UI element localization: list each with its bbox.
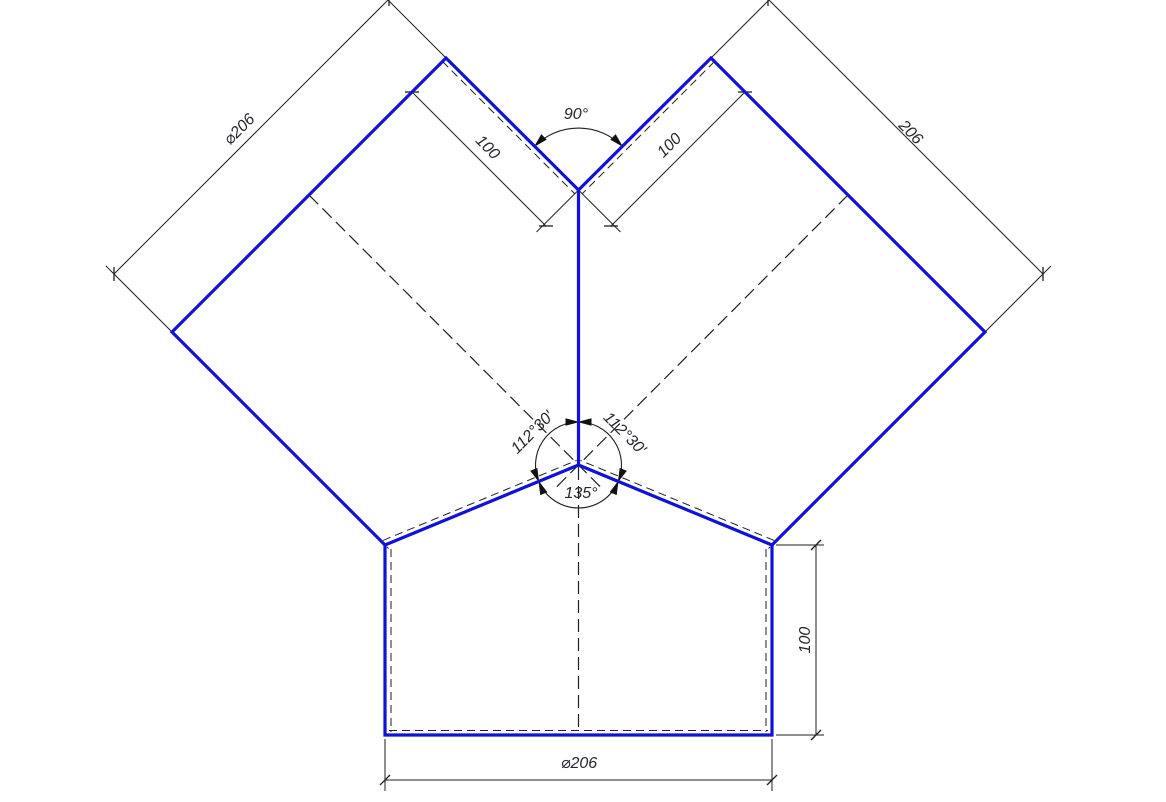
dim-left-cap [106,0,446,332]
label-crotch-angle: 90° [564,106,589,123]
label-bottom-junction-angle: 135° [564,485,598,502]
label-outlet-diameter: ⌀206 [561,755,597,772]
wye-pipe-technical-drawing: ⌀206 100 90° 100 206 112°30′ 112°30′ 135… [0,0,1166,802]
label-left-cap-diameter: ⌀206 [221,111,259,149]
label-right-junction-angle: 112°30′ [600,409,650,459]
label-left-branch-width: 100 [472,132,503,163]
dim-right-cap [711,0,1051,332]
label-outlet-height: 100 [797,627,814,654]
dim-crotch-angle [535,128,623,146]
part-outline [172,58,985,735]
drawing-canvas: ⌀206 100 90° 100 206 112°30′ 112°30′ 135… [0,0,1166,802]
label-right-cap-length: 206 [894,116,926,148]
dimension-labels: ⌀206 100 90° 100 206 112°30′ 112°30′ 135… [221,106,926,772]
